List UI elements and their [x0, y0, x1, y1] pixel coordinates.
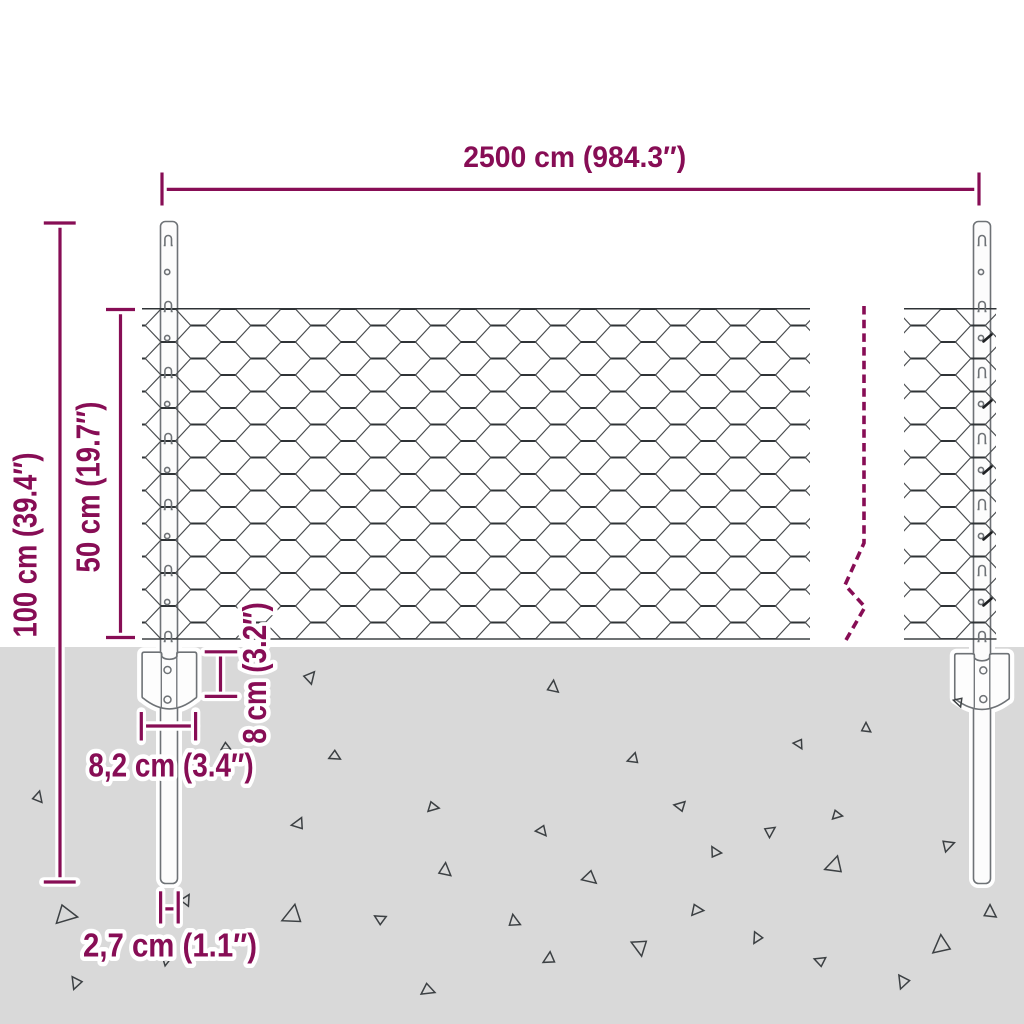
svg-text:2500 cm (984.3″): 2500 cm (984.3″) — [463, 141, 686, 174]
svg-text:8 cm (3.2″): 8 cm (3.2″) — [236, 602, 273, 744]
svg-text:2,7 cm (1.1″): 2,7 cm (1.1″) — [83, 926, 257, 963]
svg-text:100 cm (39.4″): 100 cm (39.4″) — [7, 453, 44, 638]
svg-text:8,2 cm (3.4″): 8,2 cm (3.4″) — [88, 747, 253, 784]
svg-text:50 cm (19.7″): 50 cm (19.7″) — [69, 402, 106, 573]
